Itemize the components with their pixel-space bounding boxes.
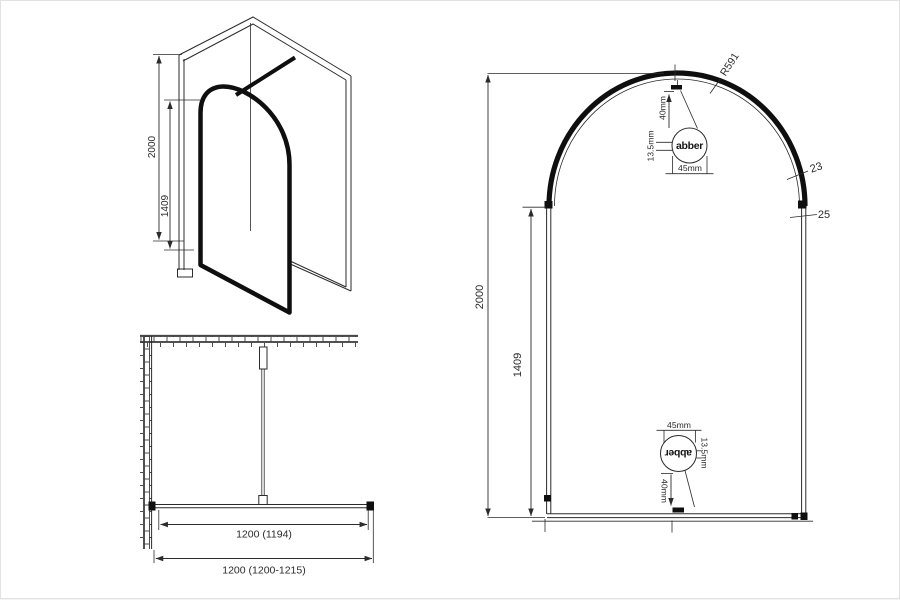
iso-wall-profile: [178, 55, 193, 277]
plan-glass-panel: [149, 502, 375, 511]
brand-logo-bottom: abber: [665, 447, 692, 459]
plan-left-wall: [140, 336, 152, 549]
plan-support-bar: [259, 347, 267, 505]
front-bottom-edge: [532, 513, 813, 533]
plan-inner-width-label: 1200 (1194): [236, 529, 292, 541]
iso-door-height-label: 1409: [160, 194, 171, 217]
drawing-svg: 2000 1409: [1, 1, 900, 600]
iso-height-label: 2000: [147, 135, 158, 158]
frame-thickness-label: 23: [809, 160, 824, 175]
left-wall-bricks: [140, 336, 152, 549]
technical-drawing-canvas: 2000 1409: [0, 0, 900, 599]
top-offset-label: 40mm: [658, 96, 668, 120]
front-left-profile: [544, 201, 553, 514]
top-anchor-fitting: [671, 85, 682, 90]
front-bottom-callout: abber 45mm 13.5mm 40mm: [657, 420, 710, 513]
plan-dimension-inner: 1200 (1194): [159, 510, 368, 541]
bottom-offset-label: 40mm: [660, 479, 670, 503]
plan-dimension-outer: 1200 (1200-1215): [154, 510, 373, 577]
bottom-width-label: 45mm: [667, 420, 691, 430]
profile-width-label: 25: [818, 209, 830, 221]
iso-dimension-1409: 1409: [160, 100, 200, 250]
radius-label: R591: [718, 51, 742, 79]
top-width-label: 45mm: [678, 163, 702, 173]
front-dimension-2000: 2000: [474, 74, 664, 518]
bottom-anchor-fitting: [673, 508, 685, 513]
bottom-thickness-label: 13.5mm: [700, 437, 710, 468]
plan-outer-width-label: 1200 (1200-1215): [222, 565, 305, 577]
iso-glass-panel-outline: [179, 17, 351, 291]
iso-view: 2000 1409: [147, 17, 351, 313]
front-profile-width-annotation: 25: [790, 209, 830, 221]
front-right-profile: [798, 201, 807, 515]
iso-support-bar: [236, 58, 295, 96]
front-side-height-label: 1409: [512, 353, 524, 377]
front-height-label: 2000: [474, 285, 486, 309]
front-top-callout: abber 40mm 13.5mm 45mm: [646, 80, 714, 174]
front-dimension-1409: 1409: [512, 207, 546, 516]
plan-wall-bracket: [149, 502, 156, 511]
plan-top-wall: [140, 335, 358, 347]
top-thickness-label: 13.5mm: [646, 130, 656, 161]
brand-logo-top: abber: [676, 140, 703, 152]
plan-end-cap: [367, 502, 375, 511]
iso-arched-frame: [201, 86, 290, 312]
top-wall-bricks: [140, 336, 358, 347]
plan-view: 1200 (1194) 1200 (1200-1215): [140, 335, 374, 576]
front-view: 2000 1409 R591 23 25 abber 40m: [474, 51, 830, 533]
